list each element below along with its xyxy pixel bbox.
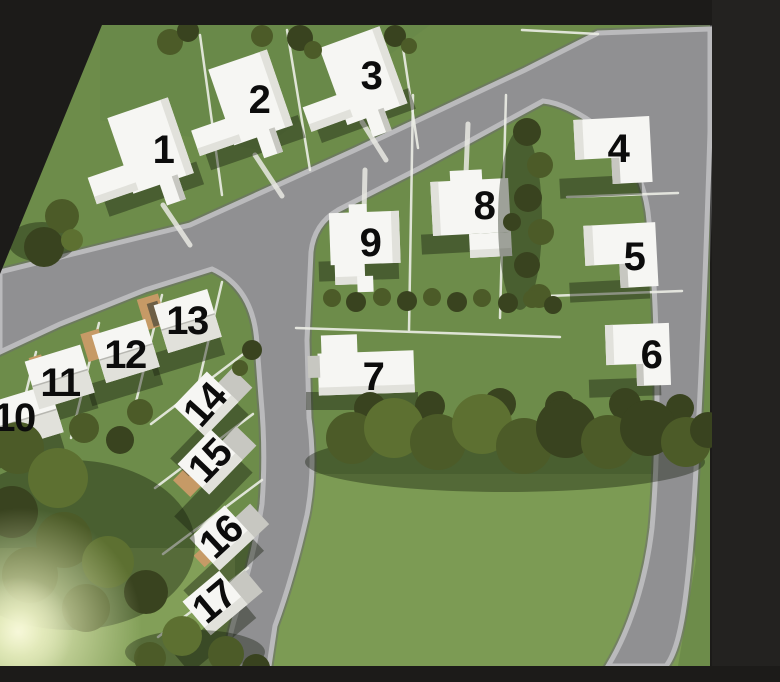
lot-label-11[interactable]: 11: [40, 361, 81, 405]
lot-label-7[interactable]: 7: [363, 355, 384, 399]
lot-label-5[interactable]: 5: [624, 235, 646, 279]
lot-label-10[interactable]: 10: [0, 396, 35, 440]
lot-label-8[interactable]: 8: [474, 184, 496, 228]
lot-label-12[interactable]: 12: [104, 333, 146, 377]
lot-label-13[interactable]: 13: [166, 299, 208, 343]
lot-label-4[interactable]: 4: [608, 127, 631, 171]
lot-label-6[interactable]: 6: [641, 333, 662, 377]
lot-label-3[interactable]: 3: [361, 54, 382, 98]
frame-right: [712, 0, 780, 682]
frame-top: [0, 0, 780, 25]
site-plan-render: 1234567891011121314151617: [0, 0, 780, 682]
lot-label-2[interactable]: 2: [249, 78, 270, 122]
site-plan-viewport: 1234567891011121314151617: [0, 0, 780, 682]
frame-bottom: [0, 666, 780, 682]
lot-label-1[interactable]: 1: [153, 128, 175, 172]
lot-label-9[interactable]: 9: [360, 221, 381, 265]
